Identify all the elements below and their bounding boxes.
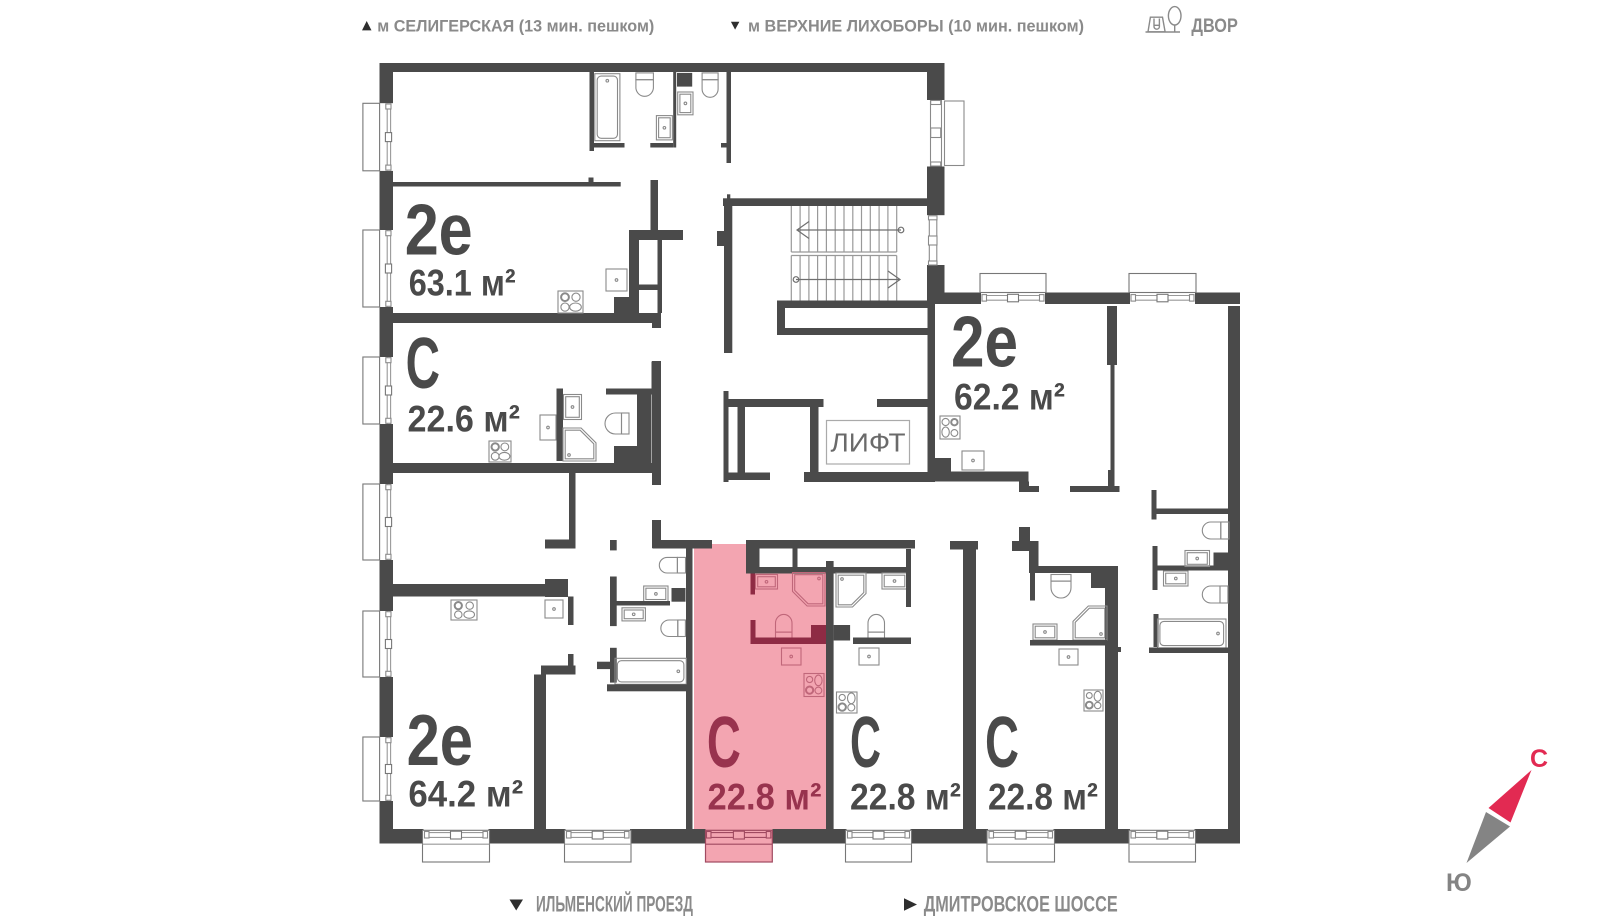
svg-text:22.8 м²: 22.8 м² xyxy=(988,776,1098,818)
svg-text:62.2 м²: 62.2 м² xyxy=(954,376,1065,418)
svg-text:ЛИФТ: ЛИФТ xyxy=(831,428,906,458)
svg-text:ИЛЬМЕНСКИЙ ПРОЕЗД: ИЛЬМЕНСКИЙ ПРОЕЗД xyxy=(536,892,693,917)
svg-text:ДМИТРОВСКОЕ ШОССЕ: ДМИТРОВСКОЕ ШОССЕ xyxy=(924,892,1118,917)
svg-text:С: С xyxy=(707,703,741,783)
svg-text:м ВЕРХНИЕ ЛИХОБОРЫ (10 мин. пе: м ВЕРХНИЕ ЛИХОБОРЫ (10 мин. пешком) xyxy=(748,16,1084,35)
svg-text:С: С xyxy=(985,703,1019,783)
svg-text:ДВОР: ДВОР xyxy=(1191,16,1238,37)
svg-text:2е: 2е xyxy=(405,190,473,270)
svg-text:м СЕЛИГЕРСКАЯ (13 мин. пешком): м СЕЛИГЕРСКАЯ (13 мин. пешком) xyxy=(377,16,654,35)
svg-text:2е: 2е xyxy=(951,303,1018,383)
svg-text:2е: 2е xyxy=(407,701,473,781)
svg-text:22.8 м²: 22.8 м² xyxy=(850,776,961,818)
svg-text:С: С xyxy=(1530,745,1548,773)
svg-text:Ю: Ю xyxy=(1446,869,1472,897)
svg-text:22.8 м²: 22.8 м² xyxy=(708,776,822,818)
svg-text:64.2 м²: 64.2 м² xyxy=(408,773,523,815)
svg-text:63.1 м²: 63.1 м² xyxy=(409,262,516,304)
svg-text:С: С xyxy=(406,324,440,404)
svg-text:С: С xyxy=(850,703,881,783)
svg-text:22.6 м²: 22.6 м² xyxy=(408,397,521,439)
